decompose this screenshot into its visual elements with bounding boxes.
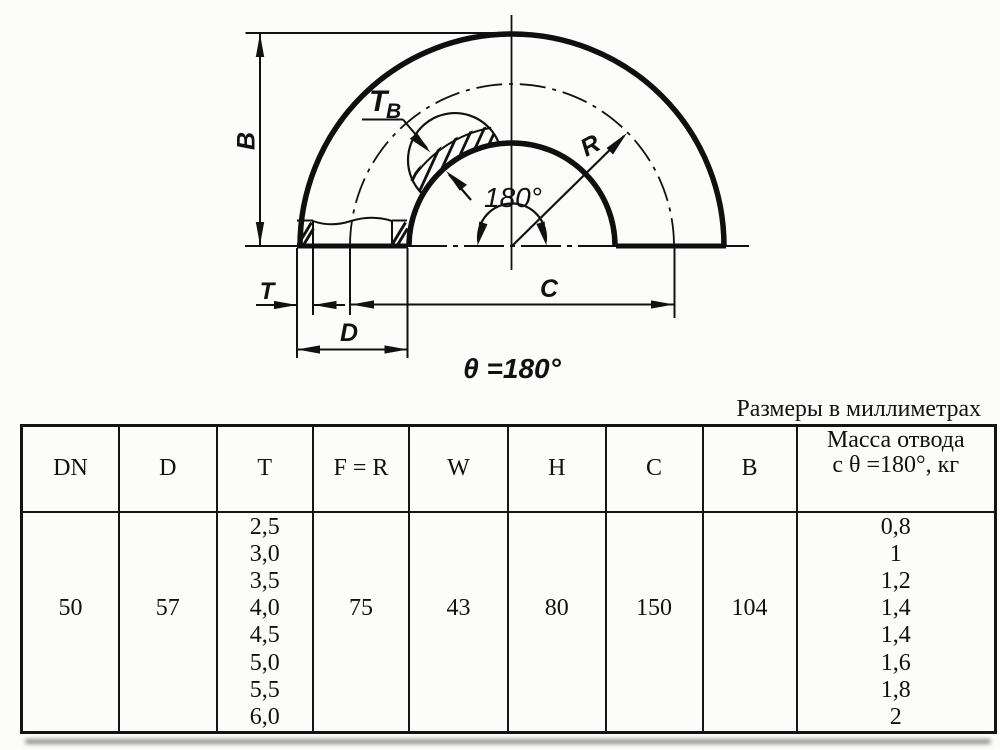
svg-text:B: B — [386, 100, 401, 123]
svg-text:B: B — [233, 132, 261, 150]
svg-text:D: D — [340, 319, 358, 347]
svg-text:θ =180°: θ =180° — [463, 353, 561, 384]
svg-text:T: T — [260, 278, 277, 305]
svg-text:R: R — [576, 129, 605, 162]
svg-text:180°: 180° — [484, 182, 542, 213]
svg-text:C: C — [540, 275, 559, 303]
